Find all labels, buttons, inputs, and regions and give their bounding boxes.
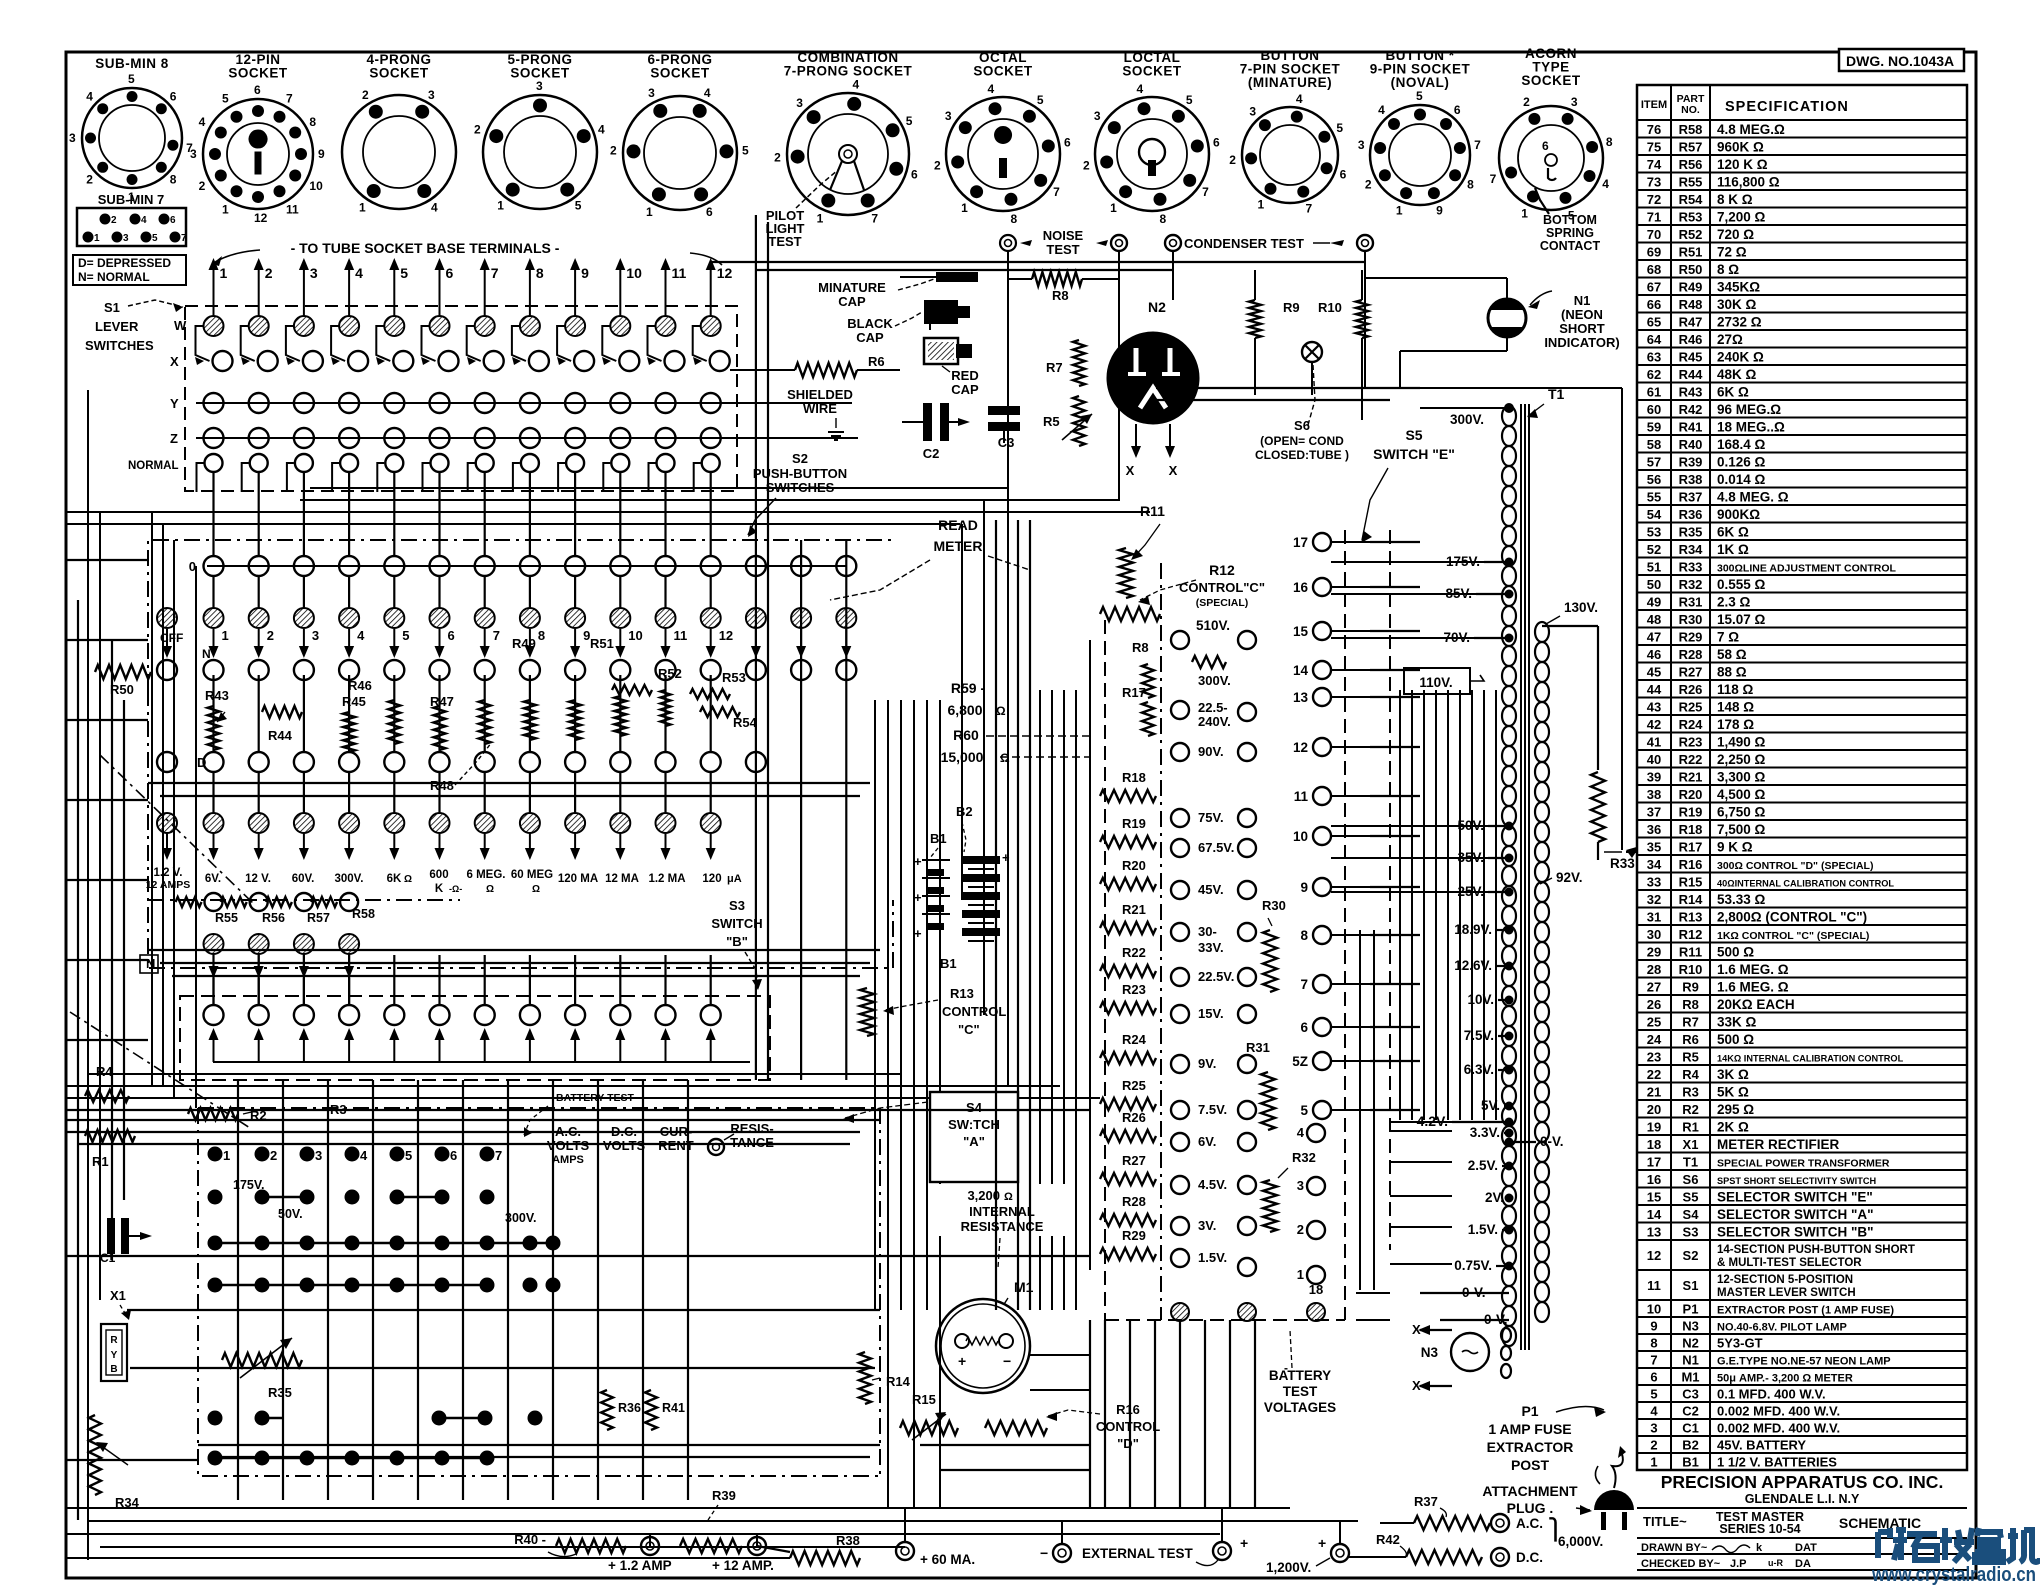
svg-text:3.3V.: 3.3V.: [1470, 1125, 1500, 1140]
svg-text:+ 1.2 AMP: + 1.2 AMP: [608, 1558, 672, 1573]
svg-text:+ 60 MA.: + 60 MA.: [920, 1552, 975, 1567]
svg-text:30K Ω: 30K Ω: [1717, 297, 1757, 312]
svg-text:45V.: 45V.: [1198, 882, 1224, 897]
svg-text:NO.: NO.: [1681, 104, 1700, 116]
svg-text:R47: R47: [1679, 315, 1703, 330]
svg-text:11: 11: [1647, 1278, 1661, 1293]
svg-text:9 K Ω: 9 K Ω: [1717, 840, 1753, 855]
svg-text:30: 30: [1647, 927, 1661, 942]
svg-text:S6: S6: [1683, 1172, 1699, 1187]
svg-text:DRAWN BY~: DRAWN BY~: [1641, 1542, 1708, 1554]
svg-text:7: 7: [871, 211, 878, 225]
svg-text:9: 9: [318, 147, 325, 161]
svg-text:R16: R16: [1116, 1402, 1140, 1417]
svg-text:8: 8: [1300, 928, 1308, 943]
svg-text:15V.: 15V.: [1198, 1006, 1224, 1021]
svg-text:S6: S6: [1294, 418, 1310, 433]
svg-text:R21: R21: [1122, 902, 1146, 917]
svg-text:0.014 Ω: 0.014 Ω: [1717, 472, 1766, 487]
svg-text:R25: R25: [1679, 700, 1703, 715]
svg-text:S3: S3: [729, 898, 745, 913]
svg-text:−: −: [1040, 1545, 1048, 1561]
svg-text:4: 4: [1297, 1125, 1305, 1140]
svg-text:4: 4: [704, 86, 711, 100]
svg-text:MASTER LEVER SWITCH: MASTER LEVER SWITCH: [1717, 1287, 1856, 1299]
svg-text:R55: R55: [1679, 175, 1703, 190]
svg-text:1: 1: [359, 200, 366, 214]
svg-text:3V.: 3V.: [1198, 1218, 1216, 1233]
svg-text:7: 7: [286, 92, 293, 106]
svg-text:Ω: Ω: [486, 884, 494, 895]
svg-text:300V.: 300V.: [1450, 412, 1484, 427]
svg-text:R43: R43: [1679, 385, 1703, 400]
svg-text:6: 6: [450, 1148, 457, 1163]
svg-text:G.E.TYPE NO.NE-57 NEON LAMP: G.E.TYPE NO.NE-57 NEON LAMP: [1717, 1356, 1891, 1368]
svg-text:2: 2: [265, 265, 273, 281]
svg-text:SELECTOR SWITCH "A": SELECTOR SWITCH "A": [1717, 1207, 1874, 1222]
svg-text:R56: R56: [262, 911, 285, 925]
svg-text:CONDENSER TEST: CONDENSER TEST: [1184, 236, 1304, 251]
svg-text:7 Ω: 7 Ω: [1717, 630, 1739, 645]
svg-text:4: 4: [431, 200, 438, 214]
svg-text:+: +: [1318, 1535, 1326, 1551]
svg-text:41: 41: [1647, 735, 1661, 750]
svg-text:12: 12: [1293, 740, 1308, 755]
svg-text:DAT: DAT: [1795, 1542, 1817, 1554]
svg-text:6,750 Ω: 6,750 Ω: [1717, 805, 1766, 820]
svg-text:METER RECTIFIER: METER RECTIFIER: [1717, 1137, 1840, 1152]
svg-text:32: 32: [1647, 892, 1661, 907]
svg-text:5: 5: [405, 1148, 412, 1163]
svg-text:R50: R50: [110, 682, 134, 697]
svg-text:720 Ω: 720 Ω: [1717, 227, 1754, 242]
svg-text:R34: R34: [1679, 542, 1704, 557]
svg-text:R11: R11: [1679, 945, 1702, 960]
svg-text:EXTERNAL TEST: EXTERNAL TEST: [1082, 1546, 1194, 1561]
svg-text:R14: R14: [886, 1374, 911, 1389]
svg-text:27Ω: 27Ω: [1717, 332, 1743, 347]
svg-text:7: 7: [1202, 185, 1209, 199]
svg-text:3: 3: [945, 109, 952, 123]
svg-text:R23: R23: [1122, 982, 1146, 997]
svg-text:BOTTOM: BOTTOM: [1543, 213, 1597, 227]
svg-text:R59 -: R59 -: [951, 680, 986, 696]
svg-text:6V.: 6V.: [205, 873, 221, 885]
svg-text:R44: R44: [268, 728, 293, 743]
svg-text:R5: R5: [1682, 1050, 1699, 1065]
svg-text:R8: R8: [1682, 997, 1699, 1012]
svg-text:4: 4: [199, 115, 206, 129]
svg-text:11: 11: [674, 628, 688, 643]
svg-text:R36: R36: [1679, 507, 1703, 522]
svg-text:40: 40: [1647, 752, 1661, 767]
svg-text:2: 2: [270, 1148, 277, 1163]
svg-text:500 Ω: 500 Ω: [1717, 1032, 1754, 1047]
svg-text:N: N: [146, 956, 155, 971]
svg-text:44: 44: [1647, 682, 1662, 697]
svg-text:5: 5: [1186, 93, 1193, 107]
svg-text:14: 14: [1293, 663, 1309, 678]
svg-text:27: 27: [1647, 980, 1661, 995]
svg-text:R55: R55: [215, 911, 238, 925]
svg-text:4: 4: [1137, 82, 1144, 96]
svg-text:67: 67: [1647, 280, 1661, 295]
svg-text:0.002 MFD. 400 W.V.: 0.002 MFD. 400 W.V.: [1717, 1404, 1840, 1419]
svg-text:R56: R56: [1679, 157, 1703, 172]
svg-text:SW:TCH: SW:TCH: [948, 1117, 1000, 1132]
svg-text:34: 34: [1647, 857, 1662, 872]
svg-text:R19: R19: [1122, 816, 1146, 831]
svg-text:-Ω-: -Ω-: [449, 884, 462, 894]
svg-text:4: 4: [1650, 1404, 1658, 1419]
svg-text:55: 55: [1647, 490, 1661, 505]
svg-text:CLOSED:TUBE ): CLOSED:TUBE ): [1255, 448, 1349, 462]
svg-text:36: 36: [1647, 822, 1661, 837]
svg-text:8: 8: [538, 628, 545, 643]
svg-text:R51: R51: [590, 636, 614, 651]
svg-text:92V.: 92V.: [1556, 870, 1583, 885]
svg-text:VOLTAGES: VOLTAGES: [1264, 1400, 1336, 1415]
svg-text:+: +: [1240, 1535, 1248, 1551]
svg-text:9: 9: [581, 265, 589, 281]
svg-text:20: 20: [1647, 1102, 1661, 1117]
svg-text:R5: R5: [1043, 414, 1060, 429]
svg-text:38: 38: [1647, 787, 1661, 802]
svg-text:R48: R48: [1679, 297, 1703, 312]
svg-text:S4: S4: [966, 1100, 983, 1115]
svg-text:SOCKET: SOCKET: [1122, 64, 1182, 79]
svg-text:R51: R51: [1679, 245, 1703, 260]
svg-text:4: 4: [86, 89, 93, 103]
svg-text:2: 2: [267, 628, 274, 643]
svg-text:73: 73: [1647, 175, 1661, 190]
svg-text:R14: R14: [1679, 892, 1704, 907]
svg-text:NORMAL: NORMAL: [128, 460, 178, 472]
svg-text:R35: R35: [1679, 525, 1703, 540]
svg-text:S1: S1: [104, 300, 120, 315]
svg-text:R41: R41: [1679, 420, 1703, 435]
svg-text:7: 7: [1490, 172, 1497, 186]
svg-text:3: 3: [1571, 95, 1578, 109]
svg-text:K: K: [435, 883, 444, 895]
svg-text:2: 2: [199, 179, 206, 193]
svg-text:9V.: 9V.: [1198, 1056, 1216, 1071]
svg-text:1: 1: [94, 233, 100, 244]
svg-text:70: 70: [1647, 227, 1661, 242]
svg-text:4: 4: [1378, 103, 1385, 117]
svg-text:46: 46: [1647, 647, 1661, 662]
svg-text:C1: C1: [1682, 1421, 1699, 1436]
svg-text:240K Ω: 240K Ω: [1717, 350, 1764, 365]
svg-text:SCHEMATIC: SCHEMATIC: [1839, 1515, 1921, 1531]
svg-text:21: 21: [1647, 1085, 1661, 1100]
svg-text:R: R: [110, 1335, 118, 1346]
svg-text:C2: C2: [923, 446, 940, 461]
svg-text:P1: P1: [1683, 1302, 1699, 1317]
svg-text:3: 3: [648, 86, 655, 100]
svg-text:SOCKET: SOCKET: [228, 66, 288, 81]
svg-text:SUB-MIN 7: SUB-MIN 7: [98, 192, 164, 207]
svg-text:59: 59: [1647, 420, 1661, 435]
svg-text:R49: R49: [1679, 280, 1703, 295]
svg-text:10: 10: [309, 179, 323, 193]
svg-text:R9: R9: [1682, 980, 1699, 995]
svg-text:2: 2: [1229, 153, 1236, 167]
svg-text:R33: R33: [1610, 856, 1635, 871]
svg-text:1: 1: [223, 1148, 230, 1163]
svg-text:15,000: 15,000: [941, 749, 984, 765]
svg-text:SHIELDED: SHIELDED: [787, 387, 853, 402]
svg-text:8 Ω: 8 Ω: [1717, 262, 1739, 277]
svg-text:2: 2: [1523, 95, 1530, 109]
svg-text:17: 17: [1647, 1155, 1661, 1170]
svg-text:Z: Z: [170, 431, 178, 446]
svg-text:R58: R58: [1679, 122, 1703, 137]
svg-text:+ 12 AMP.: + 12 AMP.: [712, 1558, 774, 1573]
svg-text:16: 16: [1647, 1172, 1661, 1187]
svg-text:R18: R18: [1679, 822, 1703, 837]
svg-text:8: 8: [1159, 212, 1166, 226]
svg-text:CHECKED BY~: CHECKED BY~: [1641, 1558, 1721, 1570]
svg-text:R6: R6: [1682, 1032, 1699, 1047]
svg-text:45V. BATTERY: 45V. BATTERY: [1717, 1438, 1806, 1453]
svg-text:R57: R57: [1679, 140, 1703, 155]
svg-text:R15: R15: [1679, 875, 1703, 890]
svg-text:7: 7: [495, 1148, 502, 1163]
svg-text:1KΩ CONTROL "C" (SPECIAL): 1KΩ CONTROL "C" (SPECIAL): [1717, 930, 1869, 942]
svg-text:72: 72: [1647, 192, 1661, 207]
svg-text:R48: R48: [430, 778, 454, 793]
svg-text:2: 2: [934, 158, 941, 172]
svg-text:X1: X1: [110, 1288, 126, 1303]
svg-text:3: 3: [536, 79, 543, 93]
svg-text:178 Ω: 178 Ω: [1717, 717, 1754, 732]
svg-text:300V.: 300V.: [335, 873, 364, 885]
svg-text:(SPECIAL): (SPECIAL): [1196, 597, 1249, 609]
svg-text:1: 1: [220, 265, 228, 281]
svg-text:22: 22: [1647, 1067, 1661, 1082]
svg-text:SERIES 10-54: SERIES 10-54: [1719, 1522, 1800, 1536]
svg-text:J.P: J.P: [1730, 1558, 1747, 1570]
svg-text:7: 7: [1300, 977, 1308, 992]
svg-text:4: 4: [1602, 177, 1609, 191]
svg-text:"D": "D": [1117, 1436, 1139, 1451]
svg-text:RED: RED: [951, 368, 978, 383]
svg-text:RESISTANCE: RESISTANCE: [961, 1219, 1044, 1234]
svg-text:"C": "C": [958, 1022, 980, 1037]
svg-text:N2: N2: [1148, 299, 1166, 315]
svg-text:88 Ω: 88 Ω: [1717, 665, 1747, 680]
svg-text:3K Ω: 3K Ω: [1717, 1067, 1749, 1082]
svg-text:R19: R19: [1679, 805, 1703, 820]
svg-text:12: 12: [1647, 1248, 1661, 1263]
svg-text:0-V.: 0-V.: [1540, 1134, 1564, 1149]
svg-text:R8: R8: [1052, 288, 1069, 303]
svg-text:5: 5: [1650, 1387, 1657, 1402]
svg-text:120 MA: 120 MA: [558, 873, 598, 885]
svg-text:(MINATURE): (MINATURE): [1248, 75, 1332, 90]
svg-text:25: 25: [1647, 1015, 1661, 1030]
svg-text:1: 1: [1650, 1455, 1657, 1470]
svg-text:4,500 Ω: 4,500 Ω: [1717, 787, 1766, 802]
svg-text:R46: R46: [1679, 332, 1703, 347]
svg-text:R38: R38: [1679, 472, 1703, 487]
svg-text:INDICATOR): INDICATOR): [1544, 335, 1619, 350]
svg-text:R7: R7: [1046, 360, 1063, 375]
svg-text:DA: DA: [1795, 1558, 1811, 1570]
svg-text:60 MEG: 60 MEG: [511, 869, 553, 881]
svg-text:1: 1: [817, 211, 824, 225]
svg-text:12: 12: [719, 628, 733, 643]
svg-text:116,800 Ω: 116,800 Ω: [1717, 175, 1780, 190]
svg-text:C1: C1: [100, 1251, 116, 1265]
svg-text:B: B: [110, 1364, 117, 1375]
svg-text:6: 6: [170, 215, 176, 226]
svg-text:5: 5: [906, 114, 913, 128]
svg-text:R22: R22: [1679, 752, 1703, 767]
svg-text:6: 6: [1340, 167, 1347, 181]
svg-text:6: 6: [1454, 103, 1461, 117]
svg-text:49: 49: [1647, 595, 1661, 610]
svg-text:6 MEG.: 6 MEG.: [467, 869, 506, 881]
svg-text:6V.: 6V.: [1198, 1134, 1216, 1149]
svg-text:12 V.: 12 V.: [245, 873, 271, 885]
svg-text:Ω: Ω: [1000, 751, 1010, 765]
svg-text:58 Ω: 58 Ω: [1717, 647, 1747, 662]
svg-text:R10: R10: [1318, 300, 1342, 315]
svg-text:WIRE: WIRE: [803, 401, 837, 416]
svg-text:R2: R2: [1682, 1102, 1699, 1117]
svg-text:−: −: [1003, 1353, 1011, 1369]
svg-text:Ω: Ω: [532, 884, 540, 895]
svg-text:D= DEPRESSED: D= DEPRESSED: [78, 256, 171, 270]
svg-text:1.6 MEG. Ω: 1.6 MEG. Ω: [1717, 962, 1789, 977]
svg-text:C3: C3: [998, 435, 1015, 450]
svg-text:T1: T1: [1683, 1155, 1698, 1170]
svg-text:2: 2: [1297, 1222, 1304, 1237]
svg-text:35: 35: [1647, 840, 1661, 855]
svg-text:R39: R39: [1679, 455, 1703, 470]
svg-text:5: 5: [1336, 121, 1343, 135]
svg-text:R17: R17: [1679, 840, 1703, 855]
svg-text:500 Ω: 500 Ω: [1717, 945, 1754, 960]
svg-text:R22: R22: [1122, 945, 1146, 960]
svg-text:2: 2: [610, 144, 617, 158]
svg-text:24: 24: [1647, 1032, 1662, 1047]
svg-text:7.5V.: 7.5V.: [1464, 1028, 1494, 1043]
svg-text:23: 23: [1647, 1050, 1661, 1065]
svg-text:4: 4: [988, 82, 995, 96]
svg-text:POST: POST: [1511, 1457, 1550, 1473]
svg-text:3,300 Ω: 3,300 Ω: [1717, 770, 1766, 785]
svg-text:8 K Ω: 8 K Ω: [1717, 192, 1753, 207]
svg-text:1: 1: [497, 198, 504, 212]
svg-text:R40 -: R40 -: [514, 1532, 546, 1547]
svg-text:TEST: TEST: [1283, 1384, 1318, 1399]
svg-text:12: 12: [717, 265, 733, 281]
svg-text:+: +: [914, 890, 922, 905]
svg-text:4.8 MEG. Ω: 4.8 MEG. Ω: [1717, 490, 1789, 505]
svg-text:69: 69: [1647, 245, 1661, 260]
svg-text:C3: C3: [1682, 1387, 1699, 1402]
svg-text:0.002 MFD. 400 W.V.: 0.002 MFD. 400 W.V.: [1717, 1421, 1840, 1436]
svg-text:2: 2: [1365, 178, 1372, 192]
svg-text:300V.: 300V.: [1198, 673, 1231, 688]
svg-text:R45: R45: [1679, 350, 1703, 365]
svg-text:2K Ω: 2K Ω: [1717, 1120, 1749, 1135]
svg-text:LEVER: LEVER: [95, 319, 139, 334]
svg-text:58: 58: [1647, 437, 1661, 452]
svg-text:52: 52: [1647, 542, 1661, 557]
svg-text:www.crystalradio.cn: www.crystalradio.cn: [1871, 1564, 2036, 1586]
svg-text:BLACK: BLACK: [847, 316, 893, 331]
svg-text:Ω: Ω: [1004, 1191, 1013, 1203]
svg-text:2: 2: [111, 215, 117, 226]
svg-text:R28: R28: [1122, 1194, 1146, 1209]
svg-text:7: 7: [181, 233, 187, 244]
svg-text:40ΩINTERNAL CALIBRATION CONTRO: 40ΩINTERNAL CALIBRATION CONTROL: [1717, 879, 1894, 889]
svg-text:300Ω CONTROL "D" (SPECIAL): 300Ω CONTROL "D" (SPECIAL): [1717, 860, 1873, 872]
svg-text:6.3V.: 6.3V.: [1464, 1062, 1494, 1077]
svg-text:R41: R41: [662, 1401, 685, 1415]
svg-text:6: 6: [446, 265, 454, 281]
svg-text:15: 15: [1293, 624, 1309, 639]
svg-text:u-R: u-R: [1768, 1558, 1783, 1568]
svg-text:READ: READ: [938, 517, 978, 533]
svg-text:R10: R10: [1679, 962, 1703, 977]
svg-text:R15: R15: [912, 1392, 936, 1407]
svg-text:N3: N3: [1682, 1319, 1699, 1334]
svg-text:R12: R12: [1209, 562, 1235, 578]
svg-text:(OPEN= COND: (OPEN= COND: [1260, 434, 1344, 448]
svg-text:R16: R16: [1679, 857, 1703, 872]
svg-text:X: X: [1126, 463, 1135, 478]
svg-text:R39: R39: [712, 1488, 736, 1503]
svg-text:R12: R12: [1679, 927, 1703, 942]
svg-text:4: 4: [853, 78, 860, 92]
svg-text:- TO TUBE SOCKET BASE TERM: - TO TUBE SOCKET BASE TERMINALS -: [291, 240, 560, 256]
svg-text:3: 3: [310, 265, 318, 281]
svg-text:R43: R43: [205, 688, 229, 703]
svg-text:S3: S3: [1683, 1225, 1699, 1240]
svg-text:33V.: 33V.: [1198, 940, 1224, 955]
svg-text:148 Ω: 148 Ω: [1717, 700, 1754, 715]
svg-text:8: 8: [1467, 178, 1474, 192]
svg-text:6K Ω: 6K Ω: [1717, 525, 1749, 540]
svg-text:SPST SHORT SELECTIVITY SWITCH: SPST SHORT SELECTIVITY SWITCH: [1717, 1176, 1876, 1186]
svg-text:4: 4: [141, 215, 147, 226]
svg-text:Y: Y: [170, 396, 179, 411]
svg-text:TANCE: TANCE: [730, 1135, 774, 1150]
svg-text:295 Ω: 295 Ω: [1717, 1102, 1754, 1117]
svg-text:SWITCHES: SWITCHES: [85, 338, 154, 353]
svg-text:6K: 6K: [387, 873, 402, 885]
svg-text:B2: B2: [1682, 1438, 1699, 1453]
svg-text:S5: S5: [1405, 427, 1422, 443]
svg-text:SELECTOR SWITCH "B": SELECTOR SWITCH "B": [1717, 1225, 1874, 1240]
svg-text:SPECIAL POWER TRANSFORMER: SPECIAL POWER TRANSFORMER: [1717, 1158, 1890, 1170]
svg-text:MINATURE: MINATURE: [818, 280, 886, 295]
svg-text:37: 37: [1647, 805, 1661, 820]
svg-text:1: 1: [1521, 206, 1528, 220]
svg-text:R25: R25: [1122, 1078, 1146, 1093]
svg-text:6,800: 6,800: [947, 702, 982, 718]
svg-text:1 AMP FUSE: 1 AMP FUSE: [1488, 1421, 1571, 1437]
svg-text:RESIS-: RESIS-: [730, 1121, 773, 1136]
svg-text:INTERNAL: INTERNAL: [969, 1204, 1035, 1219]
svg-text:67.5V.: 67.5V.: [1198, 840, 1234, 855]
svg-text:R37: R37: [1414, 1494, 1438, 1509]
